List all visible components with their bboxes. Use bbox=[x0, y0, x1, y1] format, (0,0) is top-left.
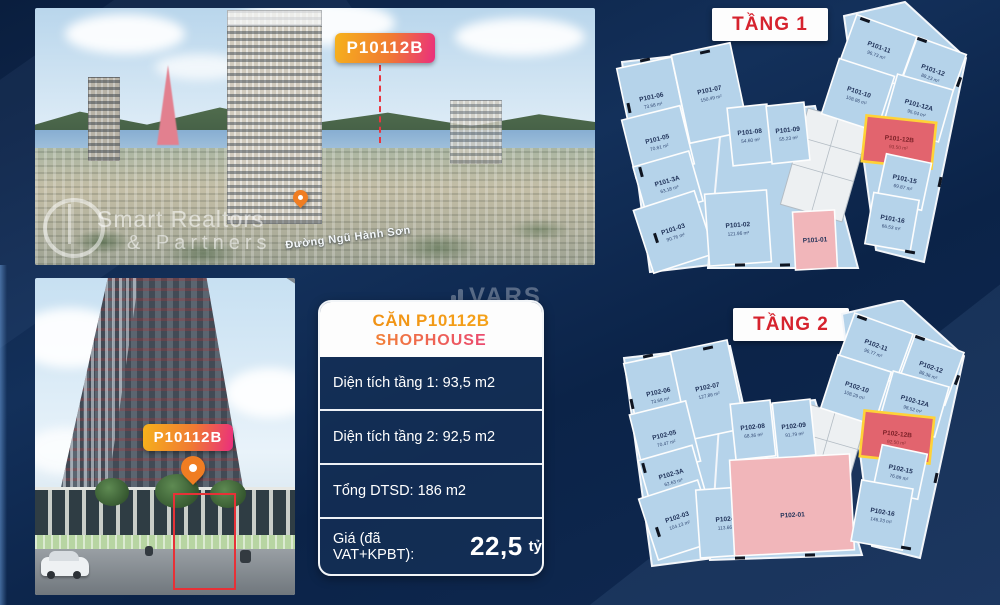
unit-badge: P10112B bbox=[143, 424, 233, 451]
area-floor1-row: Diện tích tầng 1: 93,5 m2 bbox=[320, 357, 542, 409]
aerial-photo: P10112B Đường Ngũ Hành Sơn Smart Realtor… bbox=[35, 8, 595, 265]
green-fence bbox=[35, 535, 295, 549]
floor1-plan: P101-0673.68 m² P101-07150.49 m² P101-05… bbox=[610, 0, 1000, 292]
floor2-plan: P102-0673.68 m² P102-07127.86 m² P102-05… bbox=[610, 300, 1000, 605]
svg-text:P102-01: P102-01 bbox=[780, 511, 805, 519]
flyer-page: P10112B Đường Ngũ Hành Sơn Smart Realtor… bbox=[0, 0, 1000, 605]
room: P101-1666.53 m² bbox=[865, 192, 919, 251]
price-label: Giá (đã VAT+KPBT): bbox=[333, 531, 464, 563]
watermark-text: Smart Realtors bbox=[97, 206, 264, 233]
cloud bbox=[65, 14, 185, 54]
tree bbox=[95, 478, 129, 506]
room: P101-0955.23 m² bbox=[766, 102, 810, 164]
pointer-dashed-line bbox=[379, 65, 381, 143]
cloud bbox=[455, 18, 585, 56]
secondary-tower bbox=[88, 77, 120, 161]
street-lamp bbox=[235, 278, 295, 287]
watermark-logo-icon bbox=[43, 198, 105, 258]
svg-text:P101-01: P101-01 bbox=[803, 236, 828, 244]
shophouse-outline bbox=[173, 493, 236, 590]
unit-badge-label: P10112B bbox=[347, 38, 424, 58]
street-photo: P10112B bbox=[35, 278, 295, 595]
location-pin-icon bbox=[293, 190, 308, 205]
card-title-unit: CĂN P10112B bbox=[324, 311, 538, 331]
watermark-logo-bar bbox=[68, 204, 71, 244]
location-pin-icon bbox=[181, 456, 205, 480]
room: P102-16146.23 m² bbox=[851, 480, 913, 550]
card-title-type: SHOPHOUSE bbox=[324, 332, 538, 350]
room: P101-01 bbox=[793, 210, 838, 270]
price-value: 22,5 bbox=[470, 531, 523, 562]
bridge-pylon bbox=[157, 65, 179, 145]
unit-badge: P10112B bbox=[335, 33, 435, 63]
watermark-text: & Partners bbox=[127, 232, 271, 255]
room: P102-0991.79 m² bbox=[772, 399, 816, 459]
motorbike bbox=[145, 546, 153, 556]
total-area-row: Tổng DTSD: 186 m2 bbox=[320, 463, 542, 517]
distant-tower bbox=[450, 100, 502, 164]
cloud bbox=[225, 368, 295, 418]
room: P102-0868.36 m² bbox=[730, 400, 776, 460]
edge-glow bbox=[0, 265, 7, 605]
tower-crown bbox=[227, 10, 322, 26]
area-floor2-row: Diện tích tầng 2: 92,5 m2 bbox=[320, 409, 542, 463]
card-header: CĂN P10112B SHOPHOUSE bbox=[320, 302, 542, 357]
motorbike bbox=[240, 550, 251, 563]
price-row: Giá (đã VAT+KPBT): 22,5 tỷ bbox=[320, 517, 542, 574]
room: P102-01 bbox=[730, 454, 855, 556]
room: P101-02121.96 m² bbox=[705, 190, 772, 266]
price-unit: tỷ bbox=[529, 538, 542, 555]
unit-badge-label: P10112B bbox=[154, 429, 223, 446]
car bbox=[41, 557, 89, 576]
unit-info-card: CĂN P10112B SHOPHOUSE Diện tích tầng 1: … bbox=[318, 300, 544, 576]
